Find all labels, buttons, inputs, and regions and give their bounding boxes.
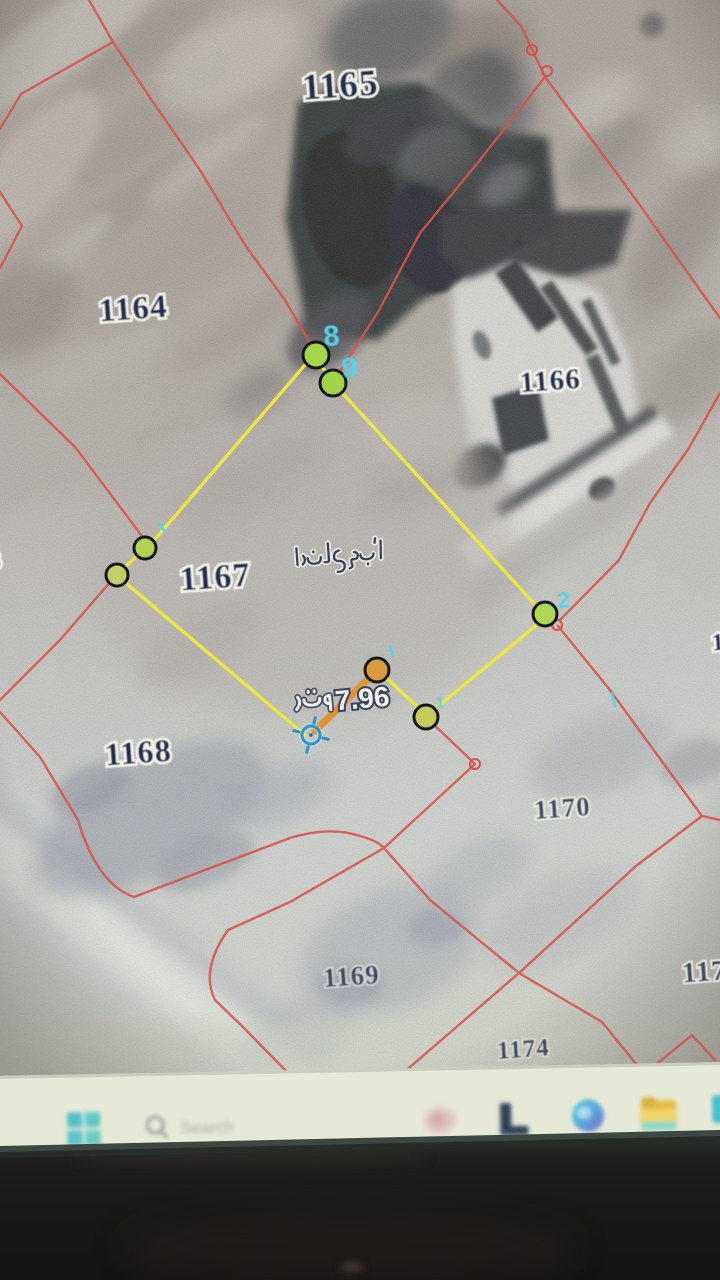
svg-text:1164: 1164 bbox=[98, 289, 169, 330]
svg-text:1166: 1166 bbox=[519, 363, 582, 399]
svg-text:1: 1 bbox=[711, 630, 720, 657]
svg-text:1: 1 bbox=[436, 694, 444, 711]
svg-text:117: 117 bbox=[681, 954, 720, 989]
svg-text:1170: 1170 bbox=[533, 791, 591, 825]
svg-text:9: 9 bbox=[340, 352, 358, 385]
svg-text:8: 8 bbox=[322, 320, 340, 353]
svg-text:1167: 1167 bbox=[179, 557, 252, 599]
svg-text:Search: Search bbox=[180, 1117, 234, 1137]
svg-text:1168: 1168 bbox=[104, 732, 173, 773]
svg-text:1165: 1165 bbox=[301, 62, 380, 108]
svg-text:7.96: 7.96 bbox=[334, 681, 391, 717]
svg-text:2: 2 bbox=[557, 587, 571, 613]
svg-text:1169: 1169 bbox=[322, 959, 380, 993]
svg-text:1174: 1174 bbox=[496, 1034, 550, 1065]
